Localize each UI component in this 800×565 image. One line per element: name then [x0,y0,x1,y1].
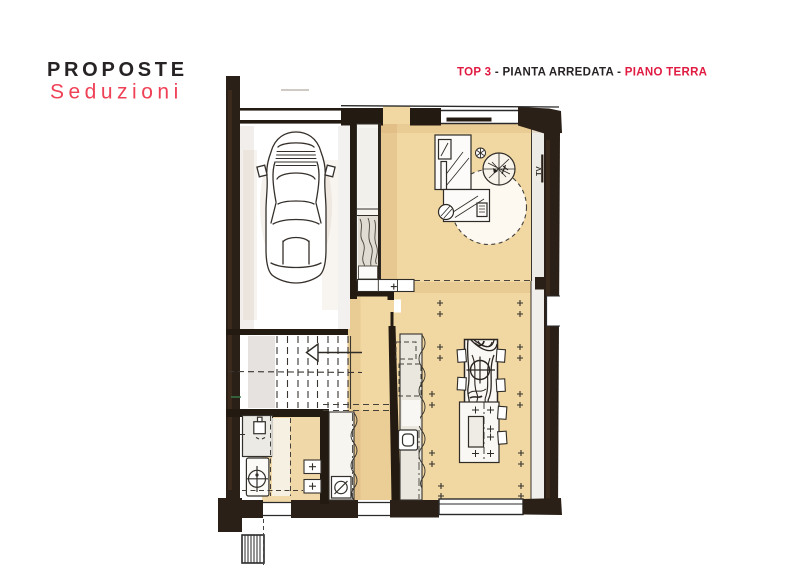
svg-text:TOP 3 - PIANTA ARREDATA - PIAN: TOP 3 - PIANTA ARREDATA - PIANO TERRA [457,67,707,79]
svg-text:PROPOSTE: PROPOSTE [47,59,188,81]
svg-text:Seduzioni: Seduzioni [50,81,183,104]
svg-text:TV: TV [534,166,543,176]
